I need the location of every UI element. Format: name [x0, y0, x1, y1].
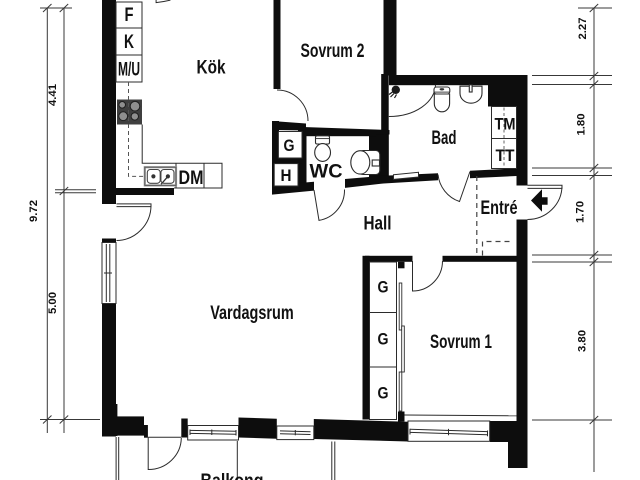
- svg-text:G: G: [378, 330, 389, 349]
- svg-text:9.72: 9.72: [28, 200, 40, 222]
- svg-text:3.80: 3.80: [577, 330, 589, 352]
- svg-text:Sovrum 2: Sovrum 2: [301, 41, 365, 62]
- svg-text:K: K: [124, 32, 134, 53]
- svg-text:DM: DM: [179, 168, 204, 189]
- svg-text:H: H: [281, 166, 292, 185]
- svg-text:F: F: [125, 5, 134, 26]
- svg-text:Sovrum 1: Sovrum 1: [430, 332, 492, 353]
- svg-text:WC: WC: [310, 162, 343, 183]
- svg-text:Hall: Hall: [364, 214, 392, 235]
- svg-text:G: G: [378, 278, 389, 297]
- svg-text:Vardagsrum: Vardagsrum: [210, 303, 294, 324]
- svg-text:TM: TM: [495, 116, 516, 134]
- svg-text:G: G: [378, 384, 389, 403]
- svg-text:Entré: Entré: [481, 198, 518, 219]
- svg-text:5.00: 5.00: [47, 292, 59, 314]
- svg-text:1.70: 1.70: [575, 201, 587, 223]
- svg-text:G: G: [284, 136, 295, 155]
- svg-text:Bad: Bad: [432, 128, 457, 149]
- svg-text:M/U: M/U: [118, 60, 140, 81]
- svg-text:Kök: Kök: [197, 58, 226, 79]
- svg-text:2.27: 2.27: [577, 18, 589, 40]
- svg-text:1.80: 1.80: [576, 114, 588, 136]
- svg-text:Balkong: Balkong: [201, 471, 264, 480]
- svg-text:TT: TT: [496, 147, 515, 165]
- svg-text:4.41: 4.41: [47, 84, 59, 106]
